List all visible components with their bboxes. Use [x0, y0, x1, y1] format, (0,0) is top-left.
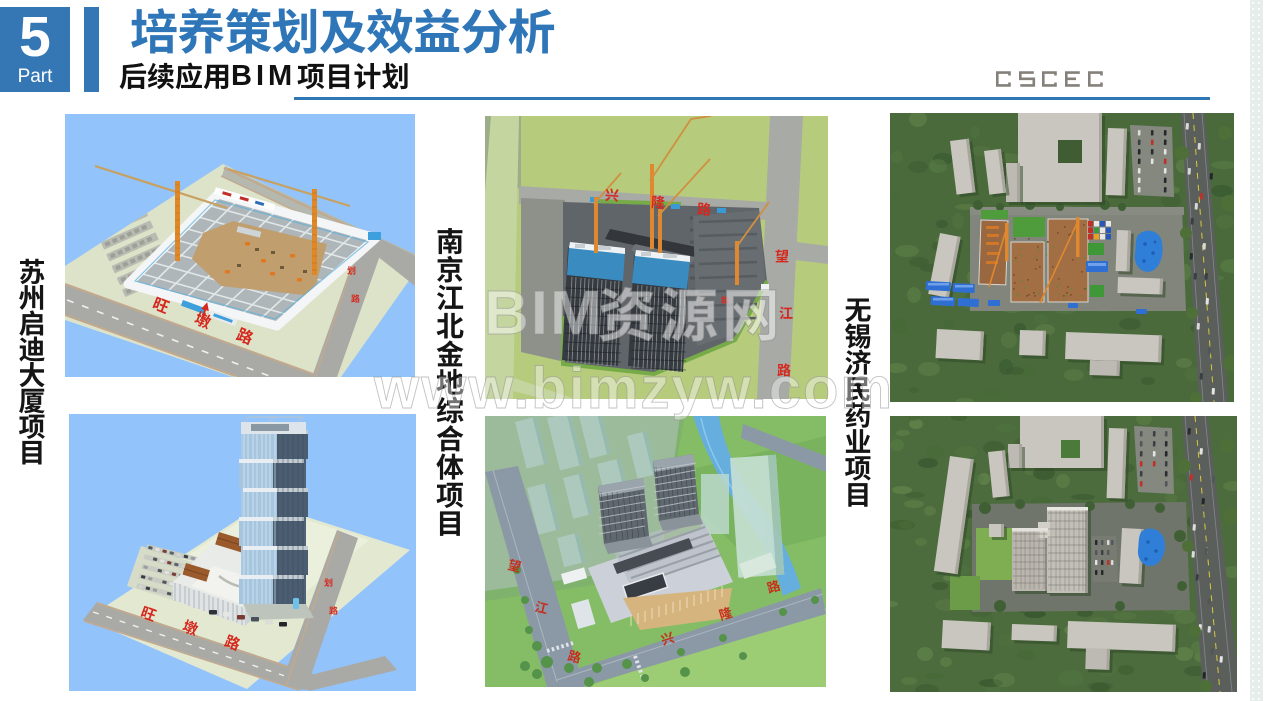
svg-text:BIM: BIM: [231, 61, 296, 92]
